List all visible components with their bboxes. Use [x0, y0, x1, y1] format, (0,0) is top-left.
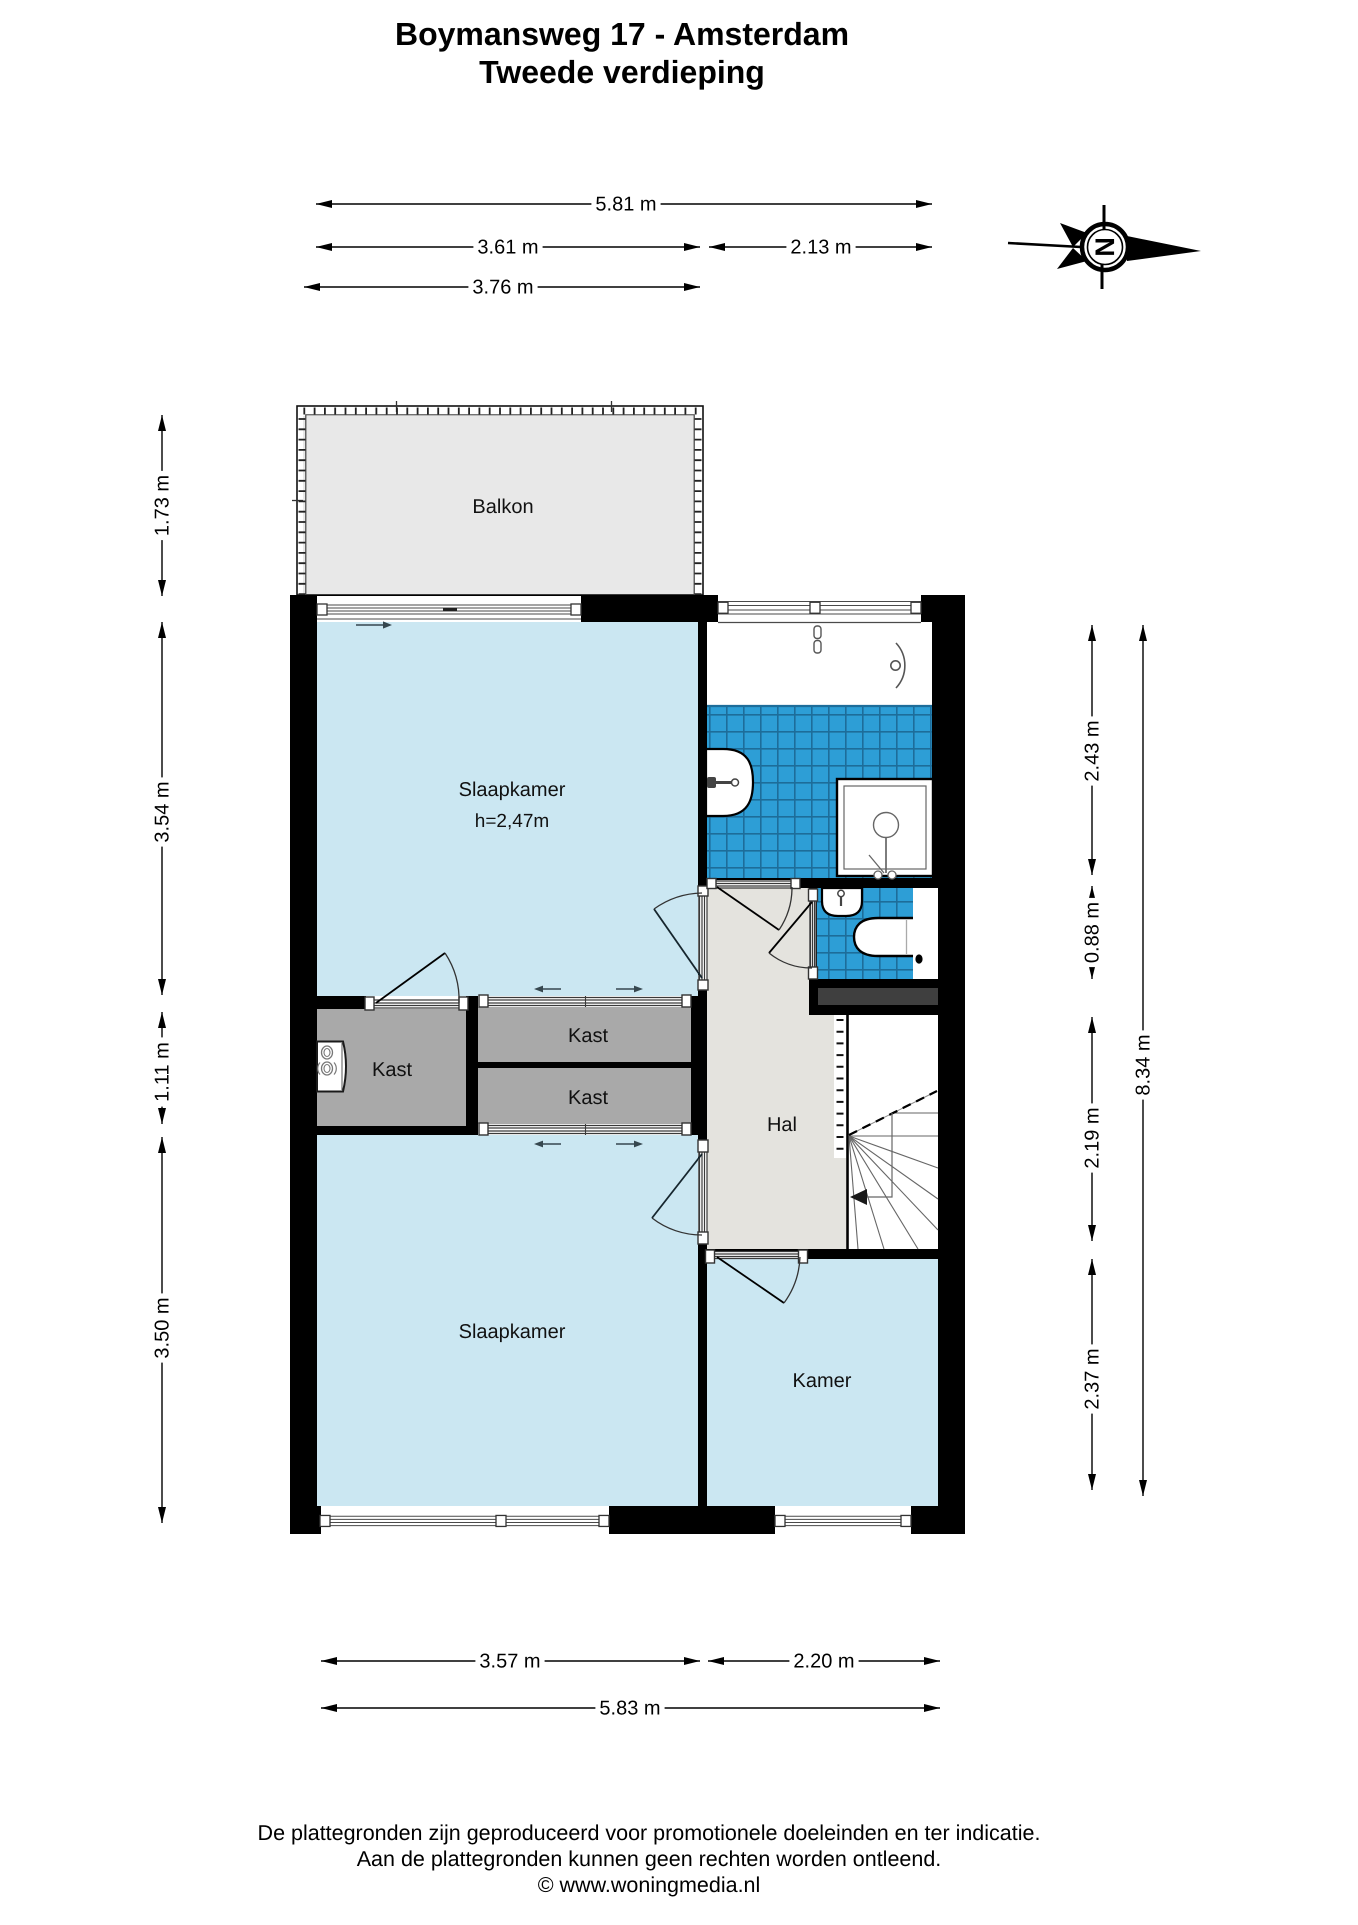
- svg-text:1.73 m: 1.73 m: [152, 475, 174, 536]
- svg-text:3.76 m: 3.76 m: [472, 277, 533, 299]
- svg-text:2.19 m: 2.19 m: [1082, 1107, 1104, 1168]
- svg-text:3.57 m: 3.57 m: [479, 1651, 540, 1673]
- svg-text:Tweede verdieping: Tweede verdieping: [479, 54, 765, 90]
- svg-text:2.37 m: 2.37 m: [1082, 1348, 1104, 1409]
- svg-text:Kast: Kast: [568, 1087, 608, 1109]
- svg-text:Slaapkamer: Slaapkamer: [459, 1321, 566, 1343]
- svg-text:Aan de plattegronden kunnen ge: Aan de plattegronden kunnen geen rechten…: [357, 1847, 942, 1871]
- svg-text:Kast: Kast: [568, 1025, 608, 1047]
- svg-text:2.43 m: 2.43 m: [1082, 720, 1104, 781]
- svg-text:Hal: Hal: [767, 1114, 797, 1136]
- svg-text:© www.woningmedia.nl: © www.woningmedia.nl: [538, 1873, 761, 1897]
- svg-text:Kamer: Kamer: [793, 1370, 852, 1392]
- svg-text:8.34 m: 8.34 m: [1133, 1034, 1155, 1095]
- svg-text:3.54 m: 3.54 m: [152, 781, 174, 842]
- svg-text:Balkon: Balkon: [472, 496, 533, 518]
- svg-text:2.13 m: 2.13 m: [790, 237, 851, 259]
- svg-text:Kast: Kast: [372, 1059, 412, 1081]
- svg-text:5.81 m: 5.81 m: [595, 194, 656, 216]
- svg-text:Boymansweg 17 - Amsterdam: Boymansweg 17 - Amsterdam: [395, 16, 849, 52]
- svg-text:De plattegronden zijn geproduc: De plattegronden zijn geproduceerd voor …: [258, 1821, 1041, 1845]
- svg-text:3.61 m: 3.61 m: [477, 237, 538, 259]
- svg-text:N: N: [1090, 237, 1120, 257]
- svg-text:2.20 m: 2.20 m: [793, 1651, 854, 1673]
- svg-text:Slaapkamer: Slaapkamer: [459, 779, 566, 801]
- svg-text:h=2,47m: h=2,47m: [475, 811, 549, 832]
- svg-text:3.50 m: 3.50 m: [152, 1297, 174, 1358]
- svg-text:1.11 m: 1.11 m: [152, 1042, 174, 1102]
- svg-text:5.83 m: 5.83 m: [599, 1698, 660, 1720]
- svg-text:0.88 m: 0.88 m: [1082, 902, 1104, 963]
